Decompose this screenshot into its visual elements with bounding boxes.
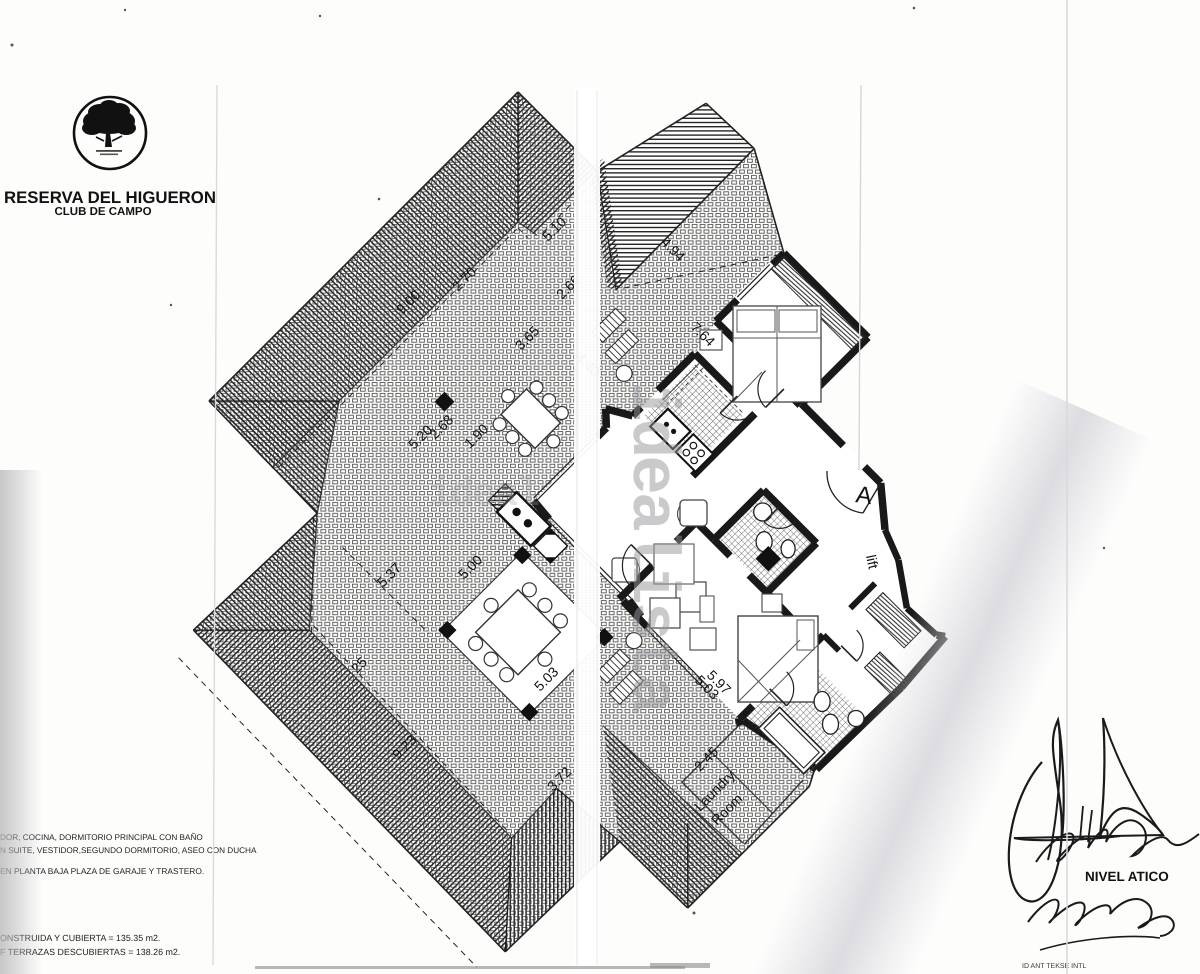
svg-text:NIVEL ATICO: NIVEL ATICO: [1085, 869, 1169, 884]
svg-text:ideal: ideal: [428, 473, 539, 518]
svg-text:ID ANT TEKSE INTL: ID ANT TEKSE INTL: [1022, 963, 1086, 970]
svg-text:CLUB DE CAMPO: CLUB DE CAMPO: [54, 206, 151, 218]
svg-text:idealista: idealista: [614, 382, 689, 713]
svg-text:RESERVA DEL HIGUERON: RESERVA DEL HIGUERON: [4, 188, 216, 207]
